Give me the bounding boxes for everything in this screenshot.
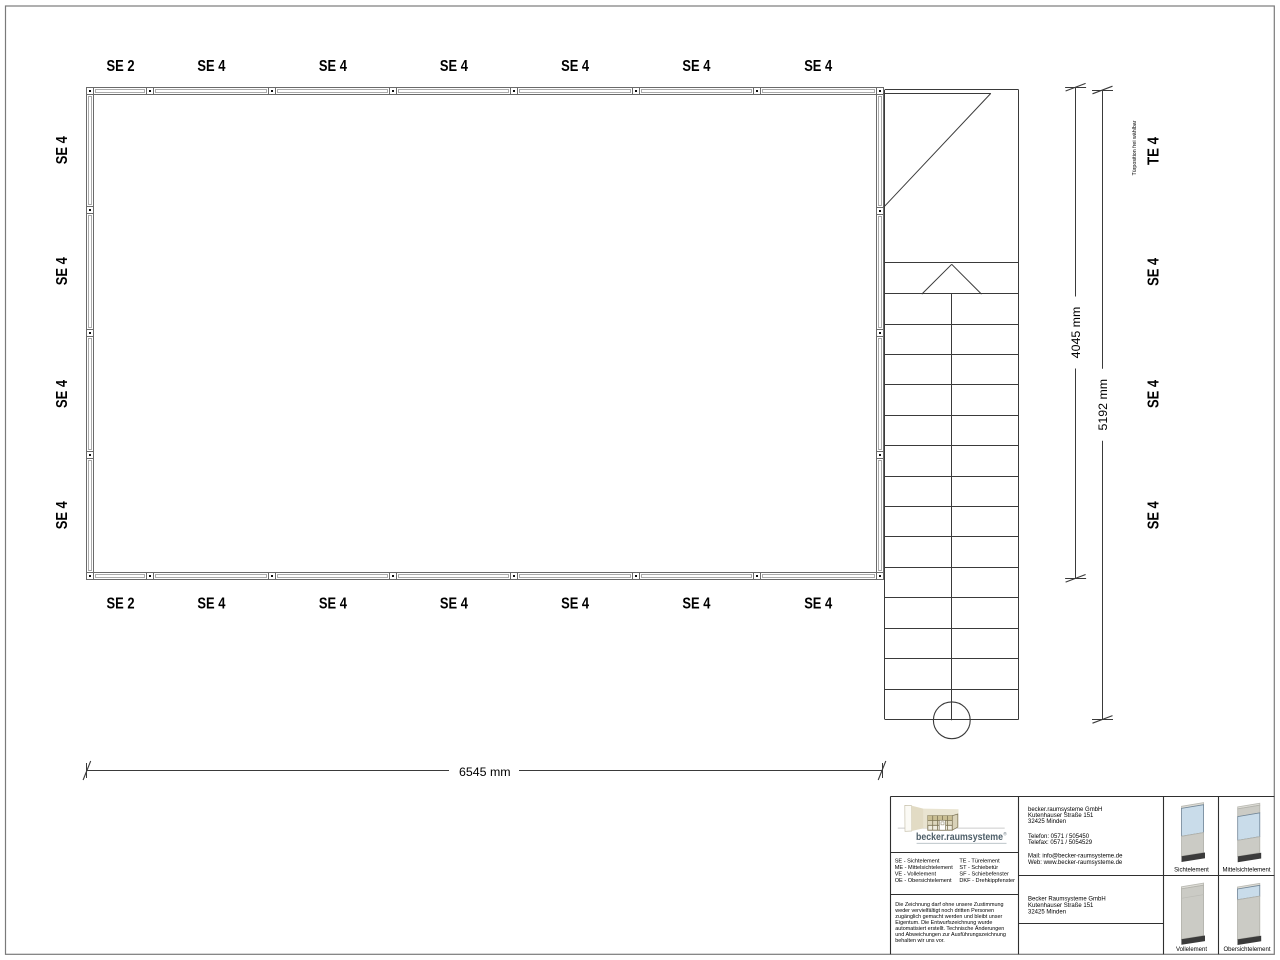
svg-text:Mittelsichtelement: Mittelsichtelement — [1222, 868, 1270, 874]
svg-text:4045 mm: 4045 mm — [1069, 307, 1083, 359]
svg-text:SE 4: SE 4 — [54, 257, 71, 285]
svg-text:SE 4: SE 4 — [1146, 258, 1163, 286]
svg-text:SE 4: SE 4 — [1146, 380, 1163, 408]
svg-text:SE 2: SE 2 — [107, 595, 135, 612]
svg-text:SE 2: SE 2 — [107, 58, 135, 75]
svg-text:Telefon: 0571 / 505450: Telefon: 0571 / 505450 — [1028, 834, 1090, 840]
svg-text:SE 4: SE 4 — [197, 58, 225, 75]
svg-text:ME - Mittelsichtelement: ME - Mittelsichtelement — [895, 865, 954, 871]
svg-text:SE - Sichtelement: SE - Sichtelement — [895, 859, 940, 865]
svg-text:SE 4: SE 4 — [804, 58, 832, 75]
svg-text:automatisiert erstellt. Techni: automatisiert erstellt. Technische Änder… — [895, 925, 1004, 932]
svg-text:32425 Minden: 32425 Minden — [1028, 819, 1066, 825]
svg-text:Web: www.becker-raumsysteme.de: Web: www.becker-raumsysteme.de — [1028, 860, 1123, 866]
svg-text:6545 mm: 6545 mm — [459, 765, 511, 779]
svg-text:SE 4: SE 4 — [440, 58, 468, 75]
svg-text:SE 4: SE 4 — [197, 595, 225, 612]
svg-text:Becker Raumsysteme GmbH: Becker Raumsysteme GmbH — [1028, 897, 1106, 903]
svg-text:SE 4: SE 4 — [319, 58, 347, 75]
svg-text:SE 4: SE 4 — [1146, 501, 1163, 529]
svg-text:becker.raumsysteme GmbH: becker.raumsysteme GmbH — [1028, 807, 1102, 813]
svg-text:Vollelement: Vollelement — [1176, 947, 1207, 953]
svg-text:SE 4: SE 4 — [682, 58, 710, 75]
svg-text:Telefax: 0571 / 5054529: Telefax: 0571 / 5054529 — [1028, 840, 1093, 846]
svg-text:Kutenhauser Straße 151: Kutenhauser Straße 151 — [1028, 813, 1094, 819]
svg-text:becker.raumsysteme: becker.raumsysteme — [916, 832, 1003, 843]
svg-text:OE - Obersichtelement: OE - Obersichtelement — [895, 878, 952, 884]
svg-text:TE - Türelement: TE - Türelement — [959, 859, 1000, 865]
svg-text:DKF - Drehkippfenster: DKF - Drehkippfenster — [959, 878, 1015, 884]
svg-text:VE - Vollelement: VE - Vollelement — [895, 872, 937, 878]
svg-text:Obersichtelement: Obersichtelement — [1223, 947, 1270, 953]
svg-text:SE 4: SE 4 — [561, 58, 589, 75]
svg-text:SF - Schiebefenster: SF - Schiebefenster — [959, 872, 1009, 878]
svg-text:SE 4: SE 4 — [54, 501, 71, 529]
svg-text:5192 mm: 5192 mm — [1096, 379, 1110, 431]
svg-text:SE 4: SE 4 — [561, 595, 589, 612]
svg-text:SE 4: SE 4 — [682, 595, 710, 612]
svg-text:Mail: info@becker-raumsysteme.: Mail: info@becker-raumsysteme.de — [1028, 854, 1123, 860]
svg-text:Kutenhauser Straße 151: Kutenhauser Straße 151 — [1028, 903, 1094, 909]
svg-text:32425 Minden: 32425 Minden — [1028, 910, 1066, 916]
svg-text:SE 4: SE 4 — [440, 595, 468, 612]
svg-text:Türposition frei wählbar: Türposition frei wählbar — [1132, 120, 1138, 175]
svg-text:ST - Schiebetür: ST - Schiebetür — [959, 865, 998, 871]
svg-text:SE 4: SE 4 — [804, 595, 832, 612]
svg-text:SE 4: SE 4 — [319, 595, 347, 612]
svg-text:TE 4: TE 4 — [1146, 137, 1163, 165]
svg-text:SE 4: SE 4 — [54, 380, 71, 408]
svg-text:behalten wir uns vor.: behalten wir uns vor. — [895, 938, 944, 944]
svg-text:Sichtelement: Sichtelement — [1174, 868, 1209, 874]
svg-text:SE 4: SE 4 — [54, 136, 71, 164]
